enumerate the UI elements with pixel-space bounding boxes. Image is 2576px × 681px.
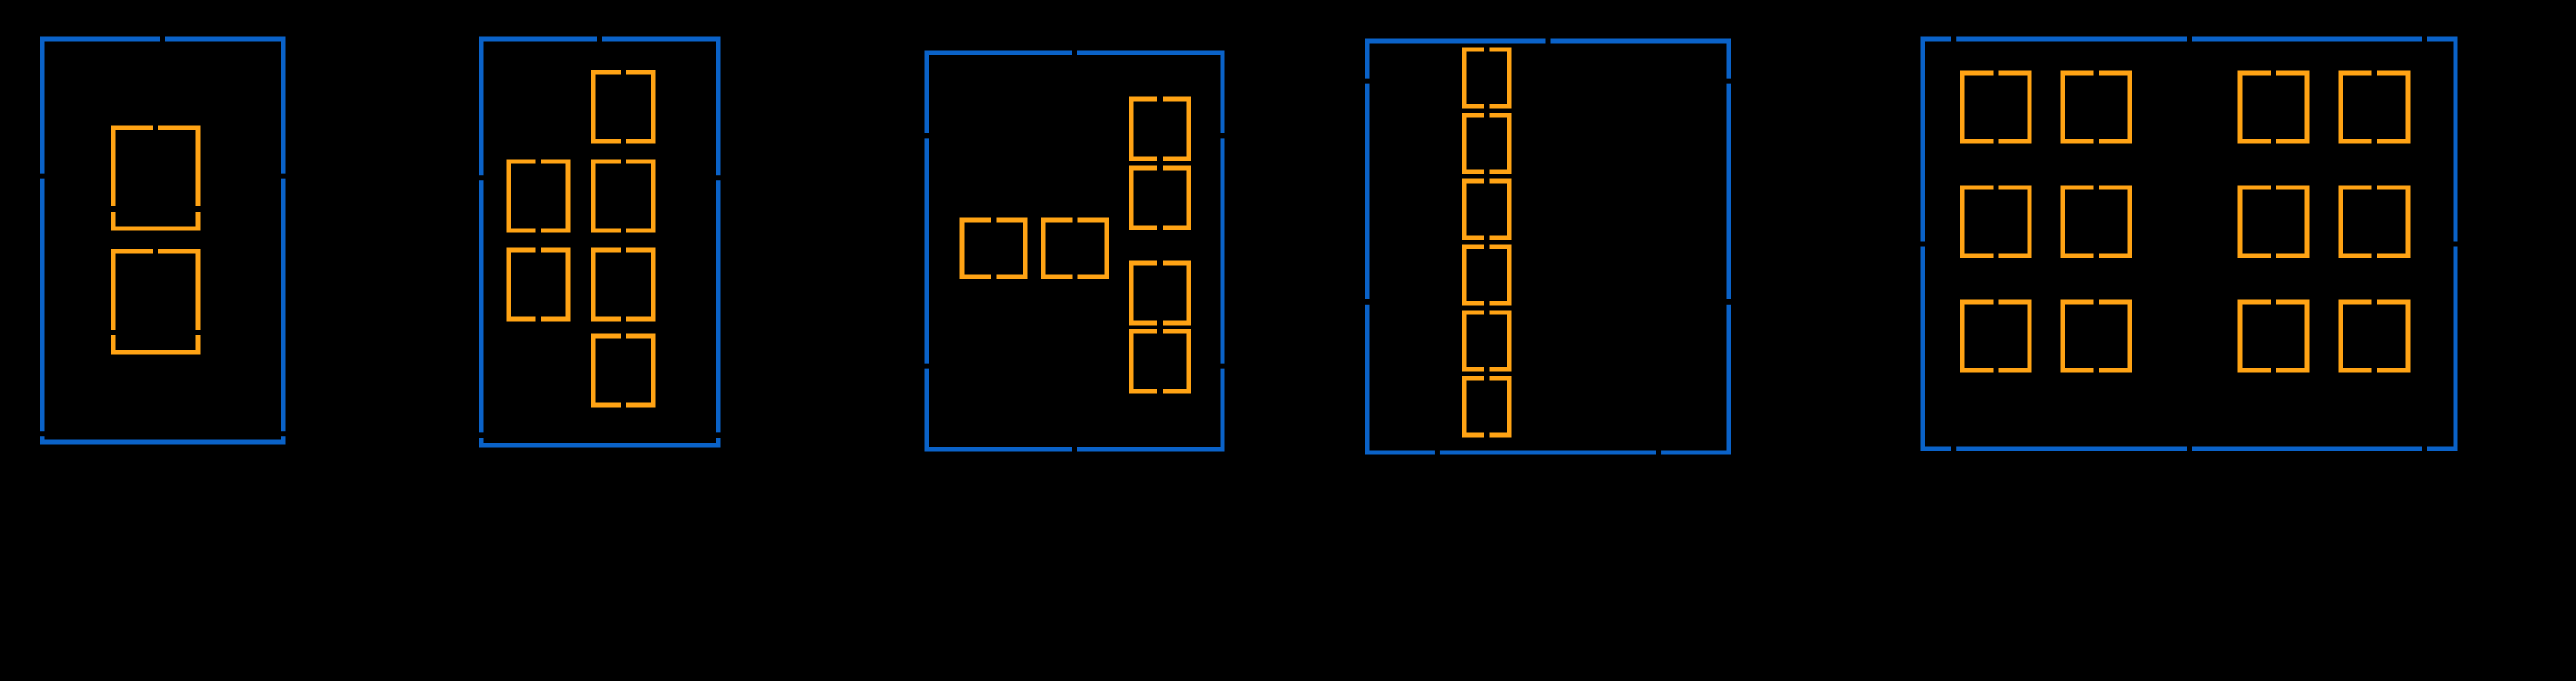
panel-2-box-5 [593, 250, 653, 319]
panel-2-box-1 [593, 72, 653, 141]
panel-2-box-3 [593, 161, 653, 230]
panel-3-box-4 [1043, 220, 1107, 277]
panel-5-box-9 [1962, 302, 2030, 370]
panel-5-box-7 [2240, 188, 2307, 256]
panel-5-box-12 [2341, 302, 2408, 370]
panel-1-box-1 [113, 128, 198, 229]
panel-4-box-3 [1464, 181, 1509, 238]
panel-5-box-10 [2063, 302, 2130, 370]
panel-5-box-2 [2063, 73, 2130, 141]
panel-5-box-6 [2063, 188, 2130, 256]
panel-2-container [481, 39, 718, 445]
panel-2-box-4 [509, 250, 568, 319]
panel-3-box-1 [1131, 99, 1189, 159]
panel-1-box-2 [113, 251, 198, 352]
page: { "canvas": { "width": 3955, "height": 1… [0, 0, 2576, 681]
panel-5-container [1923, 39, 2456, 449]
panel-4-box-4 [1464, 247, 1509, 303]
panel-5-box-4 [2341, 73, 2408, 141]
panel-1-container [42, 39, 283, 442]
diagram-canvas [0, 0, 2576, 681]
panel-4-container [1367, 41, 1729, 452]
panel-5-box-8 [2341, 188, 2408, 256]
panel-3-box-3 [962, 220, 1025, 277]
panel-5-box-3 [2240, 73, 2307, 141]
panel-4-box-1 [1464, 49, 1509, 106]
panels-svg [0, 0, 2576, 681]
panel-5-box-5 [1962, 188, 2030, 256]
panel-2-box-2 [509, 161, 568, 230]
panel-5-box-11 [2240, 302, 2307, 370]
panel-4-box-2 [1464, 115, 1509, 172]
panel-3-box-6 [1131, 331, 1189, 391]
panel-3-box-5 [1131, 263, 1189, 323]
panel-5-box-1 [1962, 73, 2030, 141]
panel-3-box-2 [1131, 168, 1189, 228]
panel-4-box-5 [1464, 313, 1509, 369]
panel-4-box-6 [1464, 378, 1509, 435]
panel-2-box-6 [593, 336, 653, 405]
